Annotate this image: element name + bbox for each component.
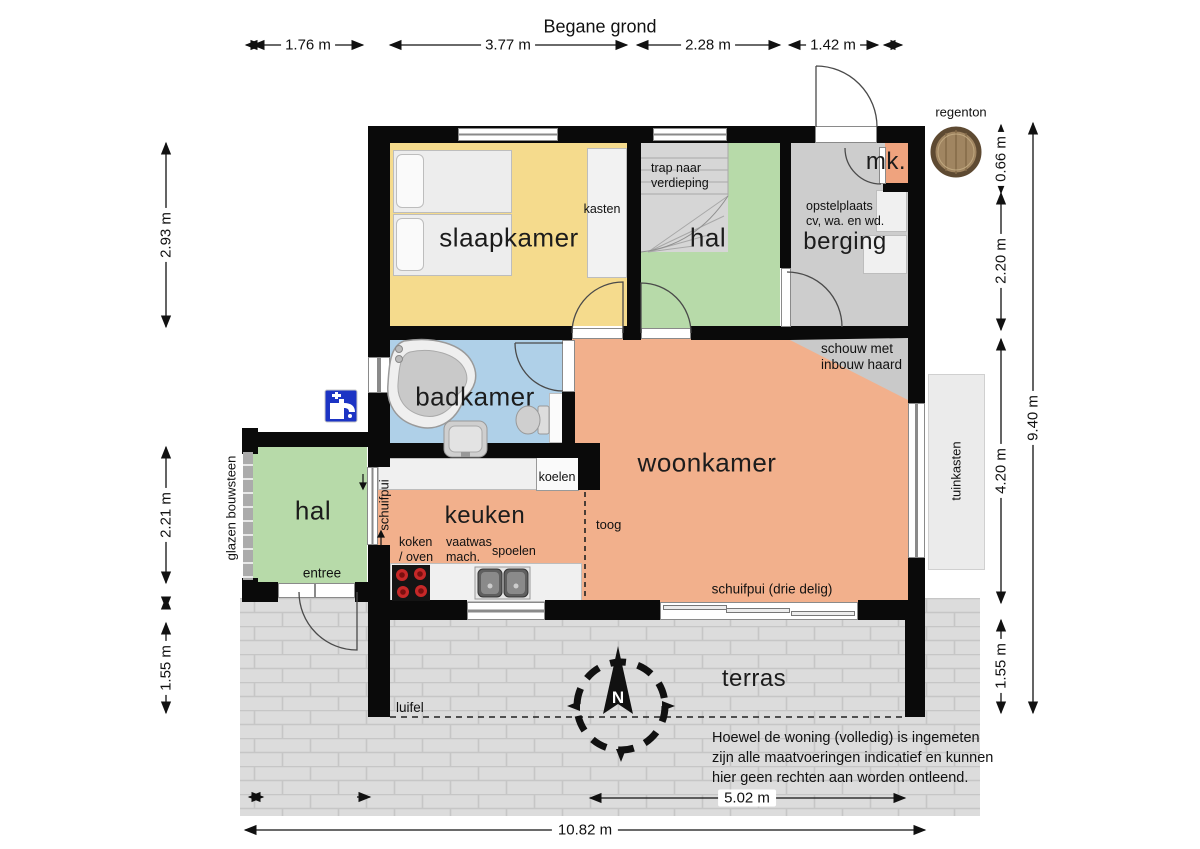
label-schuifpui-drie: schuifpui (drie delig) — [712, 582, 833, 597]
dim-left-3: 1.55 m — [158, 641, 175, 695]
page-title: Begane grond — [543, 17, 656, 38]
label-kasten: kasten — [584, 202, 621, 216]
label-schouw-line2: inbouw haard — [821, 357, 902, 373]
label-terras: terras — [722, 665, 786, 693]
label-mk: mk. — [866, 148, 906, 176]
dim-top-2: 3.77 m — [481, 37, 535, 54]
label-vaatwas-line2: mach. — [446, 550, 492, 565]
label-woonkamer: woonkamer — [638, 448, 777, 479]
label-opstelplaats-line1: opstelplaats — [806, 199, 884, 214]
label-koken-line2: / oven — [399, 550, 433, 565]
label-vaatwas-line1: vaatwas — [446, 535, 492, 550]
label-berging: berging — [803, 228, 887, 256]
lineart-overlay: N — [0, 0, 1200, 849]
label-toog: toog — [596, 517, 621, 532]
label-koelen: koelen — [539, 470, 576, 484]
label-schuifpui: schuifpui — [377, 479, 392, 530]
tap-icon — [325, 390, 357, 422]
label-schouw-line1: schouw met — [821, 341, 902, 357]
dim-top-1: 1.76 m — [281, 37, 335, 54]
label-tuinkasten: tuinkasten — [949, 441, 964, 500]
compass-north-label: N — [612, 688, 624, 707]
dim-top-3: 2.28 m — [681, 37, 735, 54]
label-opstelplaats-line2: cv, wa. en wd. — [806, 214, 884, 229]
label-spoelen: spoelen — [492, 544, 536, 559]
dim-bottom-1: 5.02 m — [718, 790, 776, 807]
label-vaatwas: vaatwas mach. — [446, 535, 492, 565]
label-koken-line1: koken — [399, 535, 433, 550]
dim-right-total: 9.40 m — [1025, 391, 1042, 445]
label-luifel: luifel — [396, 700, 424, 715]
door-arcs — [299, 66, 881, 650]
label-opstelplaats: opstelplaats cv, wa. en wd. — [806, 199, 884, 229]
label-schouw: schouw met inbouw haard — [821, 341, 902, 373]
stove — [392, 565, 430, 601]
label-glazen-bouwsteen: glazen bouwsteen — [224, 456, 239, 561]
dim-top-4: 1.42 m — [806, 37, 860, 54]
label-hal-boven: hal — [690, 223, 726, 254]
disclaimer: Hoewel de woning (volledig) is ingemeten… — [712, 728, 993, 788]
label-entree: entree — [303, 566, 341, 581]
disclaimer-line2: zijn alle maatvoeringen indicatief en ku… — [712, 748, 993, 768]
dim-left-2: 2.21 m — [158, 488, 175, 542]
bathroom-sink — [444, 421, 487, 457]
regenton-barrel — [933, 129, 979, 175]
kitchen-sink — [475, 567, 530, 599]
dim-right-2: 2.20 m — [993, 234, 1010, 288]
label-regenton: regenton — [935, 105, 986, 120]
label-keuken: keuken — [445, 502, 525, 530]
dim-right-3: 4.20 m — [993, 444, 1010, 498]
label-badkamer: badkamer — [415, 382, 535, 413]
disclaimer-line3: hier geen rechten aan worden ontleend. — [712, 768, 993, 788]
label-trap: trap naar verdieping — [651, 161, 717, 191]
compass: N — [567, 646, 675, 762]
floorplan: N — [0, 0, 1200, 849]
dim-right-4: 1.55 m — [993, 639, 1010, 693]
disclaimer-line1: Hoewel de woning (volledig) is ingemeten — [712, 728, 993, 748]
dim-right-1: 0.66 m — [993, 132, 1010, 186]
label-hal-entree: hal — [295, 496, 331, 527]
label-koken-oven: koken / oven — [399, 535, 433, 565]
dim-bottom-2: 10.82 m — [552, 822, 618, 839]
label-slaapkamer: slaapkamer — [439, 223, 578, 254]
dim-left-1: 2.93 m — [158, 208, 175, 262]
